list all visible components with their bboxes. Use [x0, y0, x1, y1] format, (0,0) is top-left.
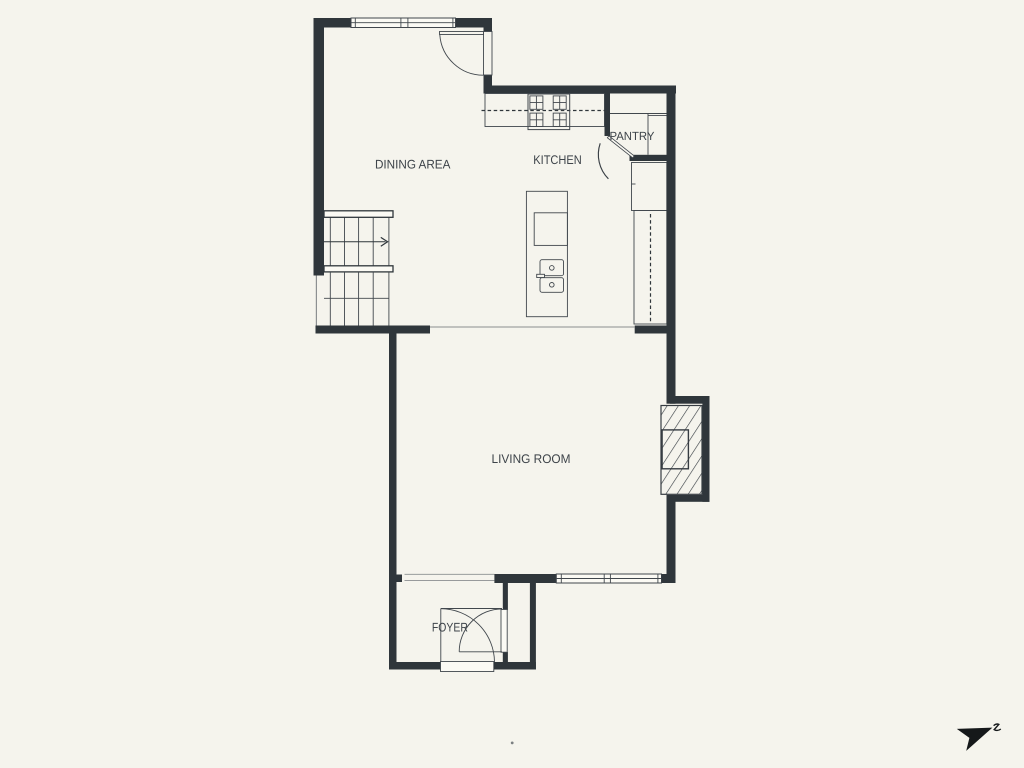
- svg-text:FOYER: FOYER: [432, 621, 468, 635]
- svg-text:DINING AREA: DINING AREA: [375, 158, 451, 172]
- svg-text:LIVING ROOM: LIVING ROOM: [492, 452, 571, 466]
- svg-text:PANTRY: PANTRY: [610, 129, 655, 143]
- svg-text:KITCHEN: KITCHEN: [533, 153, 582, 167]
